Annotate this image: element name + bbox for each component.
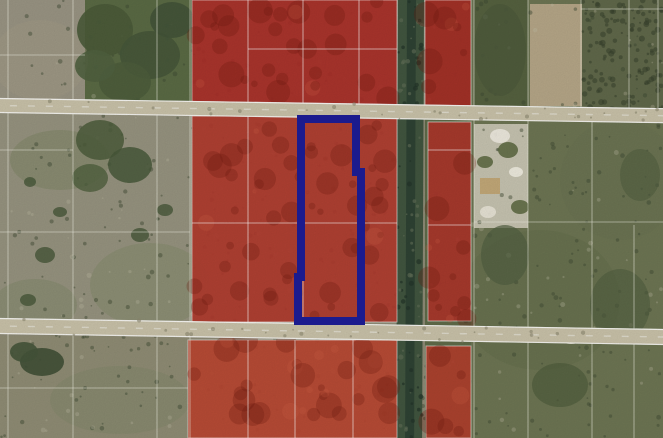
photo-grain-overlay: [0, 0, 663, 438]
aerial-photo: [0, 0, 663, 438]
aerial-parcel-map: [0, 0, 663, 438]
